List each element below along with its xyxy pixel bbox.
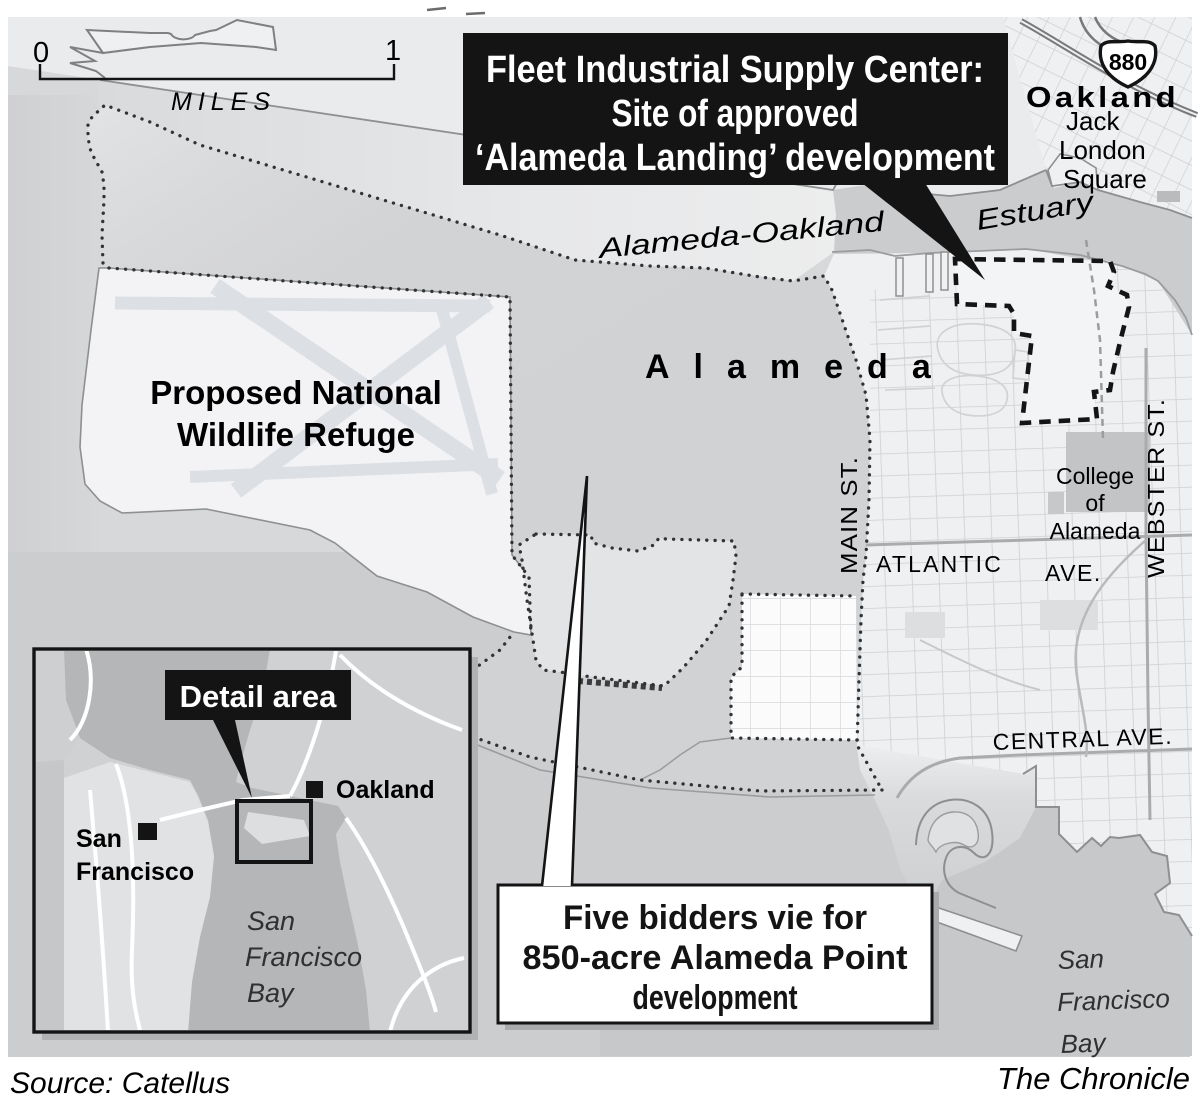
svg-text:Detail area: Detail area (180, 679, 338, 714)
svg-text:San: San (247, 906, 295, 936)
svg-text:Square: Square (1063, 164, 1147, 194)
svg-text:Five bidders vie for: Five bidders vie for (563, 899, 867, 937)
svg-text:Bay: Bay (1060, 1027, 1108, 1059)
svg-text:Source: Catellus: Source: Catellus (10, 1067, 230, 1100)
svg-text:Bay: Bay (247, 978, 295, 1008)
svg-text:development: development (633, 979, 798, 1017)
svg-text:Site of approved: Site of approved (612, 93, 859, 135)
svg-text:Francisco: Francisco (76, 858, 194, 886)
svg-text:ATLANTIC: ATLANTIC (876, 551, 1003, 577)
svg-text:WEBSTER ST.: WEBSTER ST. (1143, 398, 1169, 578)
svg-text:Francisco: Francisco (1057, 983, 1171, 1017)
svg-text:Oakland: Oakland (336, 776, 435, 804)
svg-text:AVE.: AVE. (1045, 560, 1102, 586)
svg-text:College: College (1056, 463, 1134, 489)
svg-text:The Chronicle: The Chronicle (997, 1061, 1190, 1096)
svg-text:Jack: Jack (1066, 106, 1120, 136)
svg-text:San: San (1057, 943, 1104, 975)
svg-text:San: San (76, 825, 122, 853)
svg-text:Fleet Industrial Supply Center: Fleet Industrial Supply Center: (486, 49, 984, 91)
svg-text:MILES: MILES (171, 88, 276, 116)
svg-text:MAIN ST.: MAIN ST. (836, 456, 862, 574)
svg-text:850-acre Alameda Point: 850-acre Alameda Point (523, 939, 908, 977)
svg-text:London: London (1059, 135, 1146, 165)
svg-text:Francisco: Francisco (245, 942, 362, 972)
svg-text:Wildlife Refuge: Wildlife Refuge (177, 416, 415, 453)
svg-text:‘Alameda Landing’ development: ‘Alameda Landing’ development (475, 137, 995, 179)
svg-text:1: 1 (385, 35, 401, 67)
svg-text:880: 880 (1109, 49, 1147, 75)
svg-text:Alameda: Alameda (1050, 518, 1141, 544)
svg-text:Alameda: Alameda (645, 348, 955, 386)
svg-text:Proposed National: Proposed National (150, 374, 442, 411)
svg-text:0: 0 (33, 37, 49, 69)
svg-text:of: of (1085, 490, 1105, 516)
